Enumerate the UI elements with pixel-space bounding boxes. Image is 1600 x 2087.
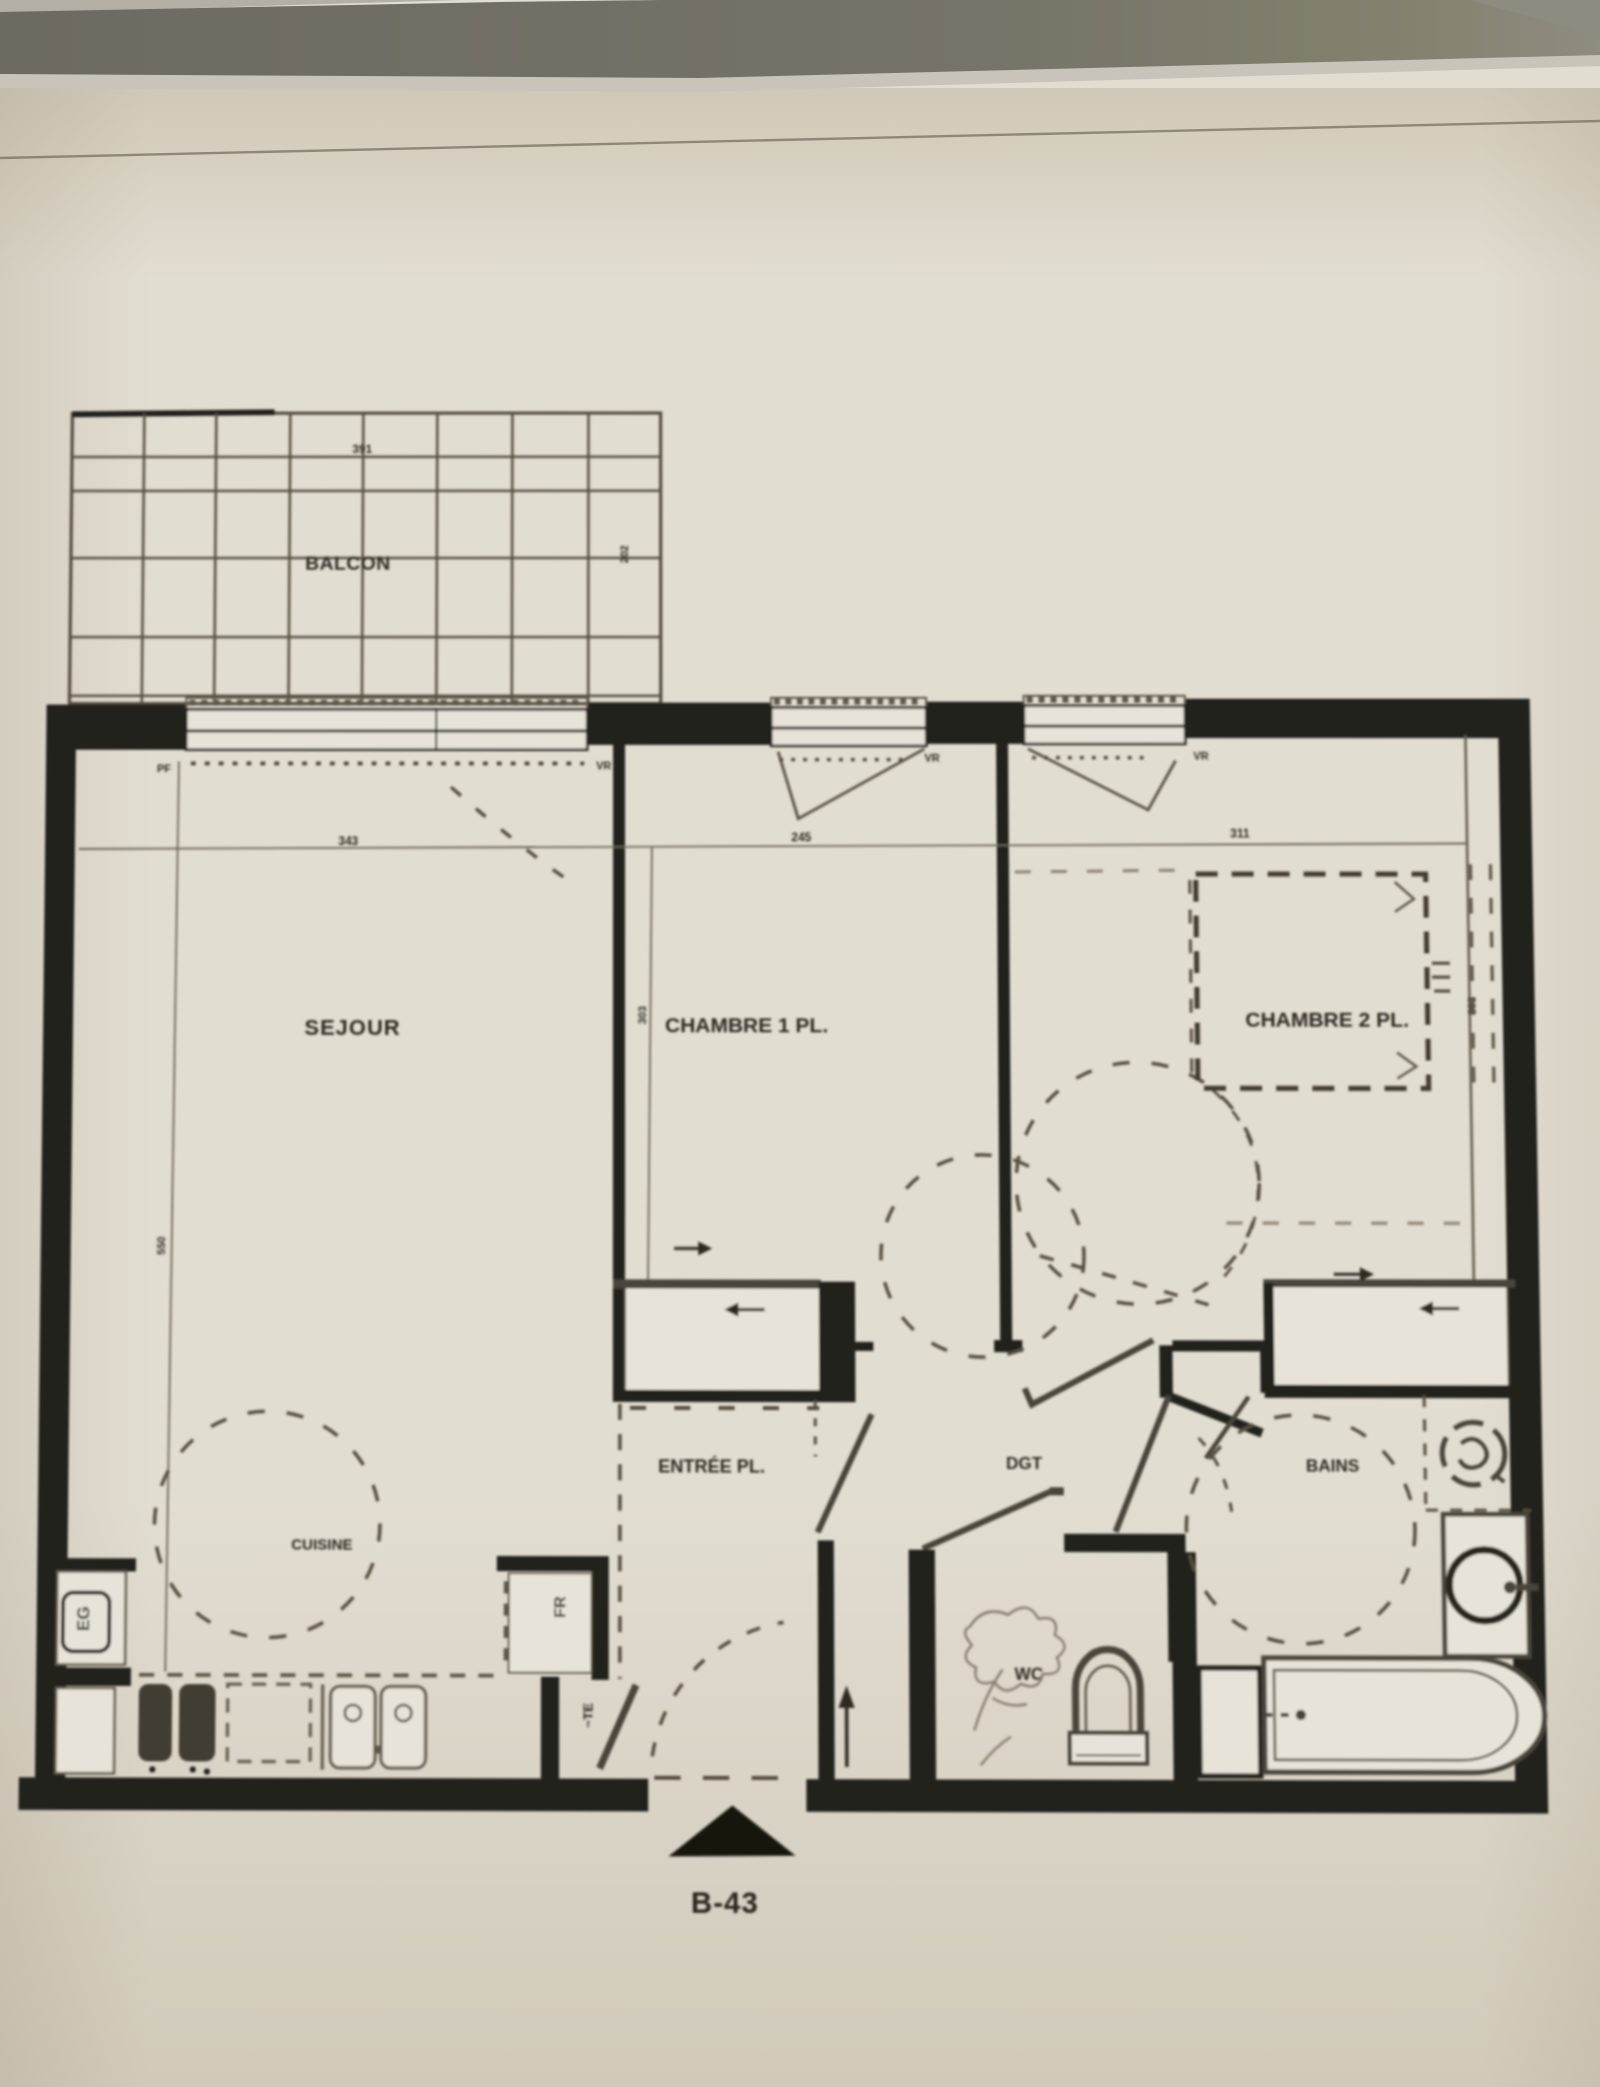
svg-text:EG: EG [74, 1606, 93, 1631]
svg-text:B-43: B-43 [691, 1886, 759, 1919]
svg-text:PF: PF [157, 763, 172, 775]
svg-text:SEJOUR: SEJOUR [304, 1015, 400, 1040]
svg-text:BALCON: BALCON [305, 553, 391, 574]
svg-text:CHAMBRE 1 PL.: CHAMBRE 1 PL. [665, 1015, 828, 1038]
svg-text:343: 343 [338, 836, 359, 848]
svg-text:202: 202 [619, 545, 631, 563]
svg-text:550: 550 [155, 1236, 168, 1254]
svg-text:~TE: ~TE [581, 1703, 596, 1728]
svg-text:FR: FR [552, 1596, 570, 1618]
svg-text:VR: VR [924, 752, 940, 764]
svg-text:VR: VR [1193, 751, 1209, 763]
svg-text:303: 303 [637, 1006, 649, 1024]
svg-text:245: 245 [791, 832, 812, 844]
svg-text:BAINS: BAINS [1306, 1457, 1360, 1476]
svg-text:CHAMBRE 2 PL.: CHAMBRE 2 PL. [1245, 1009, 1409, 1032]
svg-text:VR: VR [596, 760, 612, 772]
svg-text:DGT: DGT [1006, 1454, 1042, 1473]
svg-text:ENTRÉE PL.: ENTRÉE PL. [658, 1456, 765, 1477]
svg-text:CUISINE: CUISINE [291, 1537, 353, 1554]
svg-text:311: 311 [1230, 828, 1250, 840]
svg-text:391: 391 [352, 444, 372, 456]
